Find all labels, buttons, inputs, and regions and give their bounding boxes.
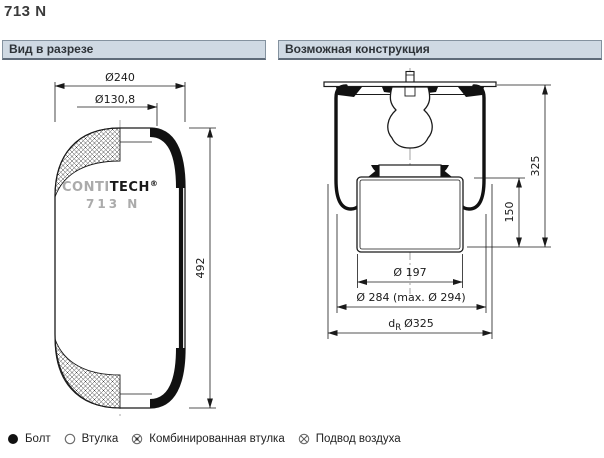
piston-wedge-left <box>368 168 379 177</box>
bolt-icon <box>7 433 19 445</box>
dim-label-dr325: dRØ325 <box>388 317 434 333</box>
legend-label: Подвод воздуха <box>316 433 401 445</box>
page-title: 713 N <box>4 3 47 20</box>
legend-item-bushing: Втулка <box>64 433 119 445</box>
logo-model-number: 713 N <box>86 197 140 211</box>
dim-label-h150: 150 <box>503 202 516 223</box>
piston-wedge-right <box>441 168 452 177</box>
legend-item-combined-bushing: Комбинированная втулка <box>131 433 284 445</box>
legend-item-air-port: Подвод воздуха <box>298 433 401 445</box>
legend-label: Болт <box>25 433 51 445</box>
panel-header-right-label: Возможная конструкция <box>285 42 430 56</box>
bushing-icon <box>64 433 76 445</box>
dim-label-d197: Ø 197 <box>393 266 426 279</box>
dim-label-height: 492 <box>194 258 207 279</box>
section-view-drawing: CONTITECH® 713 N Ø240 Ø130,8 492 <box>0 62 270 434</box>
dim-label-d240: Ø240 <box>105 71 135 84</box>
piston-flange <box>379 165 441 177</box>
top-stud <box>406 72 414 83</box>
panel-header-section-view: Вид в разрезе <box>2 40 266 60</box>
legend-label: Комбинированная втулка <box>149 433 284 445</box>
combined-bushing-icon <box>131 433 143 445</box>
contitech-logo: CONTITECH® <box>62 179 158 195</box>
piston-body <box>357 177 463 252</box>
dim-label-h325: 325 <box>529 156 542 177</box>
construction-drawing: 325 150 Ø 197 Ø 284 (max. Ø 294) dRØ325 <box>278 62 604 362</box>
legend: Болт Втулка Комбинированная втулка Подво… <box>7 433 401 445</box>
legend-label: Втулка <box>82 433 119 445</box>
panel-header-construction: Возможная конструкция <box>278 40 602 60</box>
top-plate <box>324 82 496 87</box>
air-port-icon <box>298 433 310 445</box>
dim-label-d284: Ø 284 (max. Ø 294) <box>356 291 465 304</box>
legend-item-bolt: Болт <box>7 433 51 445</box>
panel-header-left-label: Вид в разрезе <box>9 42 93 56</box>
dim-label-d130: Ø130,8 <box>95 93 135 106</box>
